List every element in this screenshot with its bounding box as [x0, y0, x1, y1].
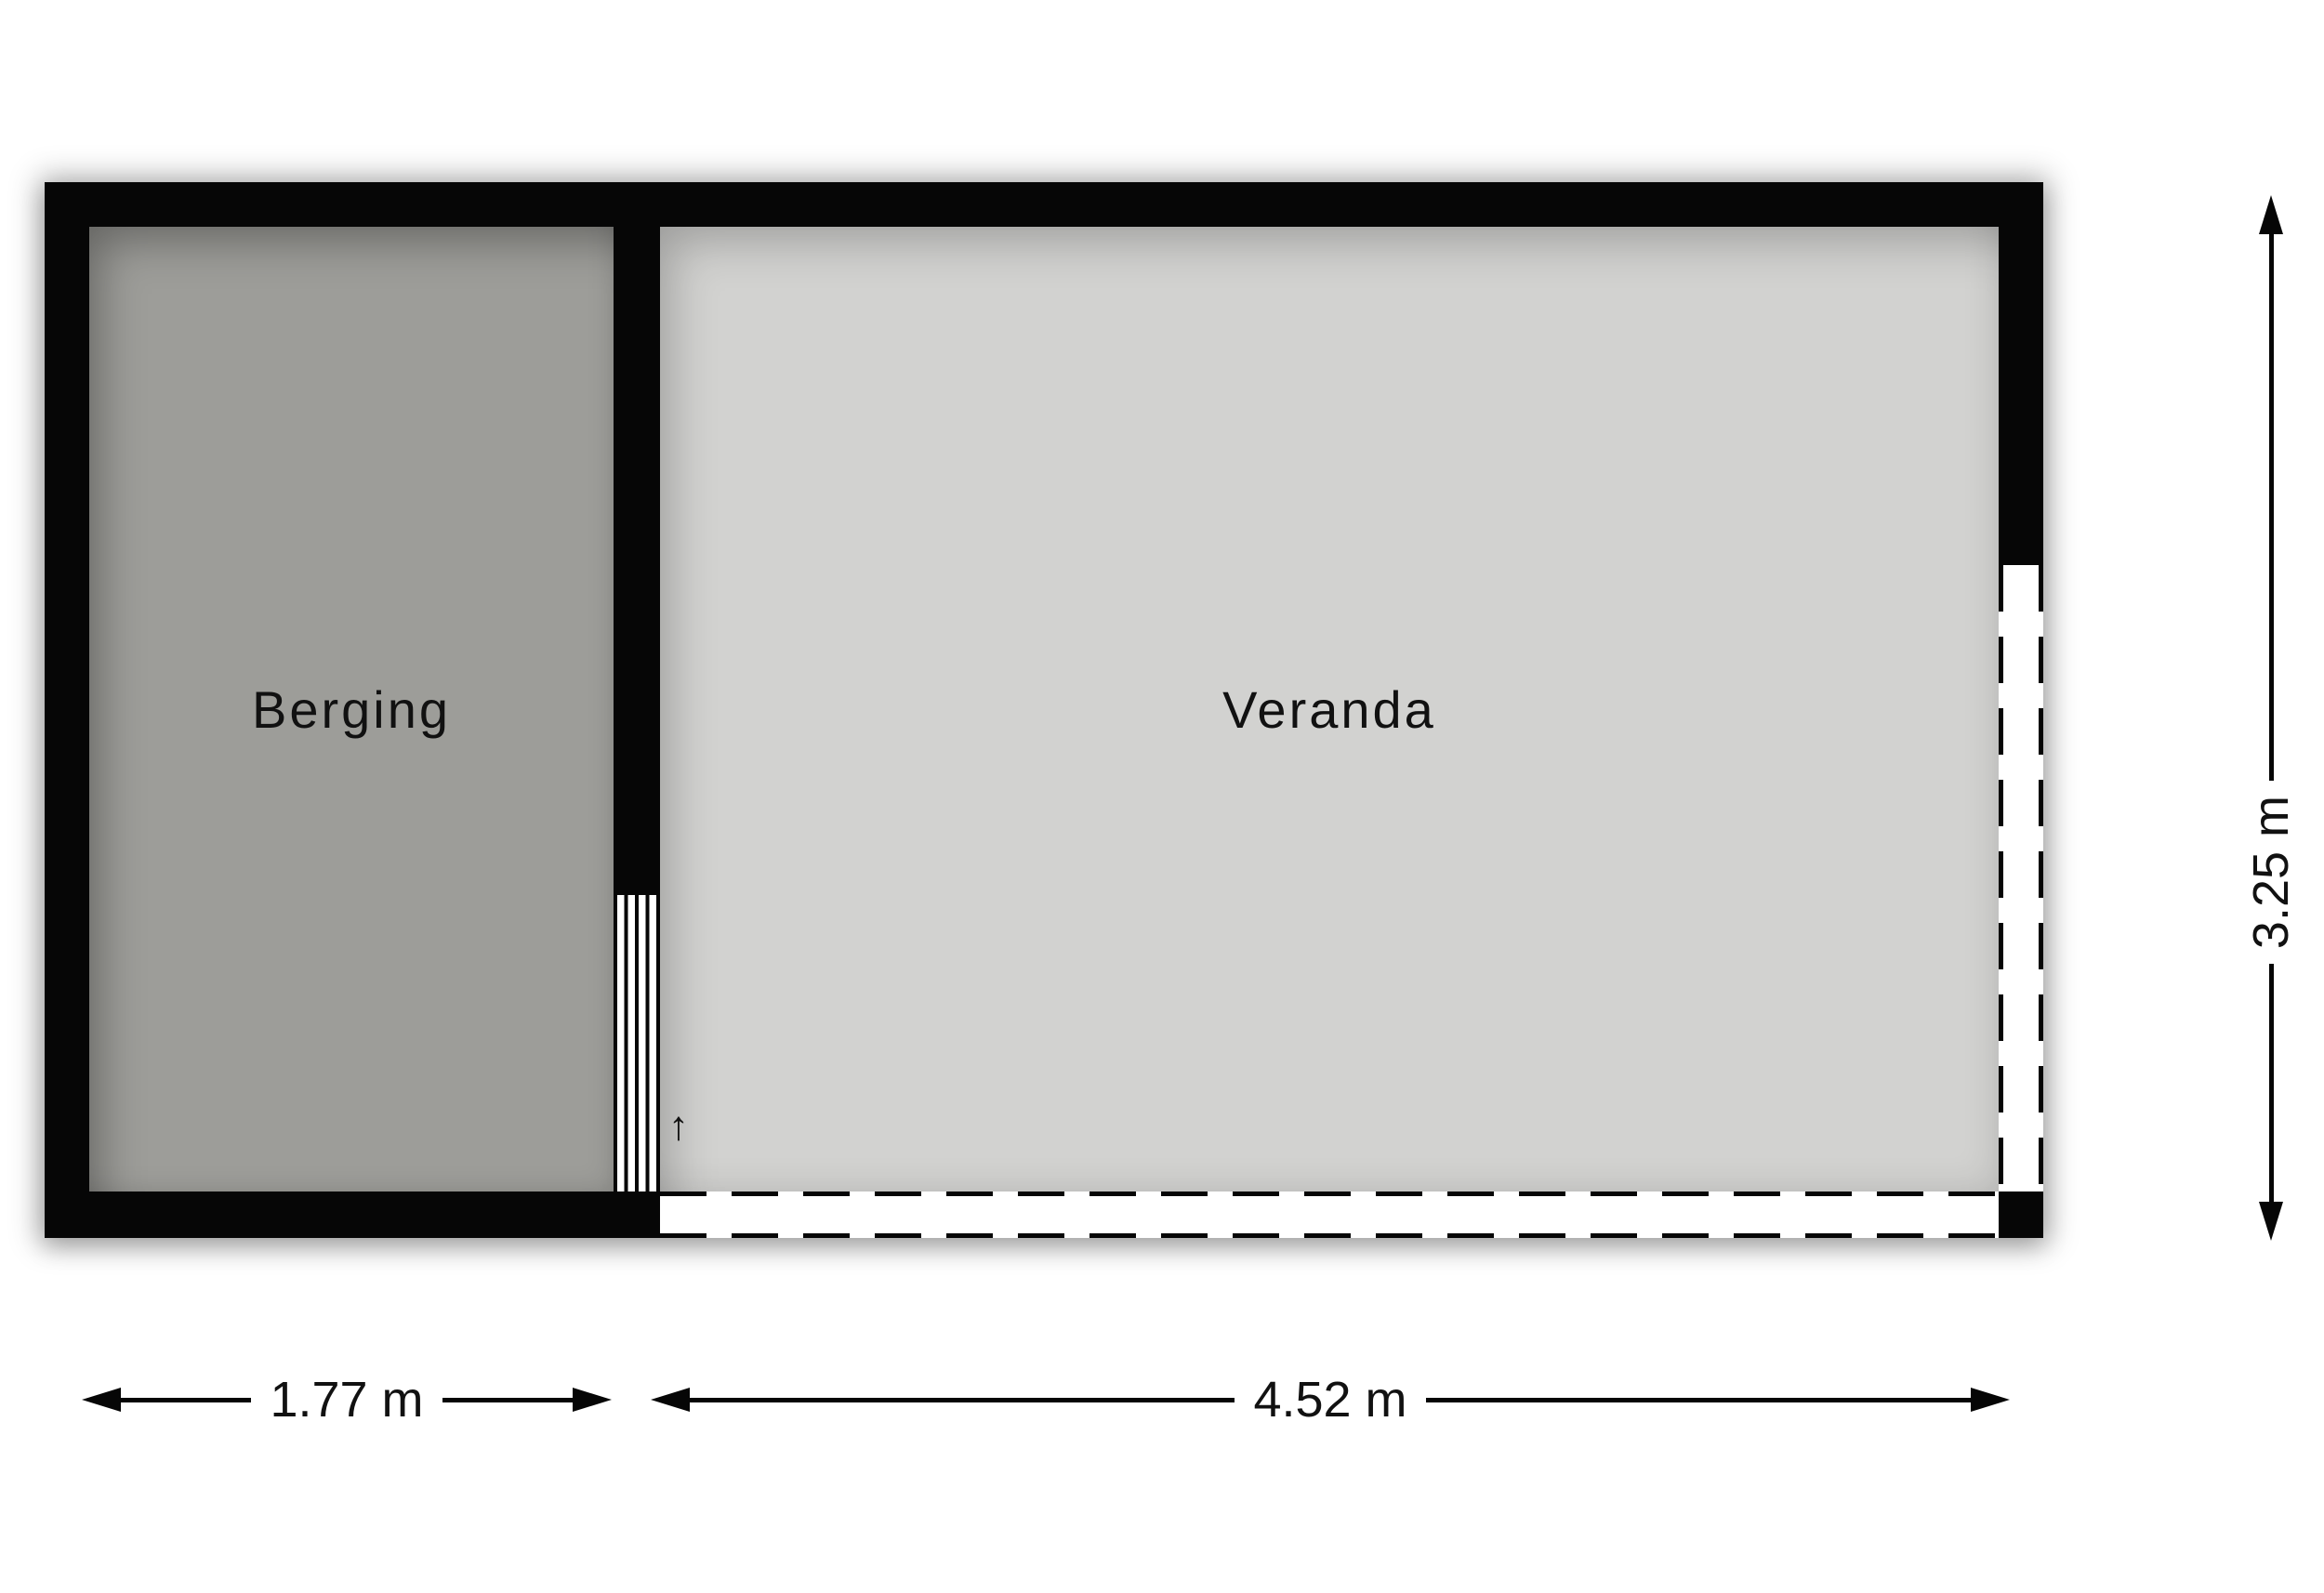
dimension-veranda-depth: 3.25 m — [2245, 195, 2297, 1241]
floorplan-canvas: Berging Veranda ↑ 1.77 m 4.52 m 3.25 — [0, 0, 2324, 1593]
dimension-veranda-width: 4.52 m — [651, 1374, 2010, 1426]
arrowhead-down-icon — [2259, 1202, 2283, 1241]
dimension-line — [121, 1398, 251, 1402]
dimension-line — [2269, 234, 2274, 781]
wall-interior — [614, 227, 660, 895]
arrowhead-left-icon — [82, 1388, 121, 1412]
dimension-label-berging-width: 1.77 m — [251, 1371, 442, 1428]
wall-corner-bottom-right — [1999, 1191, 2043, 1238]
wall-top — [45, 182, 2043, 227]
dashed-line-bottom — [660, 1233, 1999, 1238]
open-wall-right — [1999, 565, 2043, 1191]
entrance-arrow-icon: ↑ — [656, 1102, 701, 1151]
arrowhead-left-icon — [651, 1388, 690, 1412]
dashed-line-right — [2039, 565, 2043, 1191]
arrowhead-right-icon — [1971, 1388, 2010, 1412]
dimension-line — [442, 1398, 573, 1402]
dashed-line-top — [660, 1191, 1999, 1196]
dashed-line-left — [1999, 565, 2003, 1191]
arrowhead-right-icon — [573, 1388, 612, 1412]
dimension-berging-width: 1.77 m — [82, 1374, 612, 1426]
arrowhead-up-icon — [2259, 195, 2283, 234]
dimension-label-veranda-depth: 3.25 m — [2242, 781, 2300, 964]
dimension-line — [2269, 964, 2274, 1202]
room-label-berging: Berging — [252, 679, 451, 740]
door-opening-hatch — [614, 895, 660, 1191]
open-wall-bottom — [660, 1191, 1999, 1238]
dimension-line — [690, 1398, 1235, 1402]
room-berging: Berging — [89, 227, 614, 1191]
wall-right-upper — [1999, 182, 2043, 565]
dimension-label-veranda-width: 4.52 m — [1235, 1371, 1425, 1428]
wall-bottom-berging — [45, 1191, 660, 1238]
dimension-line — [1426, 1398, 1971, 1402]
room-label-veranda: Veranda — [1222, 679, 1436, 740]
wall-left — [45, 182, 89, 1238]
room-veranda: Veranda — [660, 227, 1999, 1191]
